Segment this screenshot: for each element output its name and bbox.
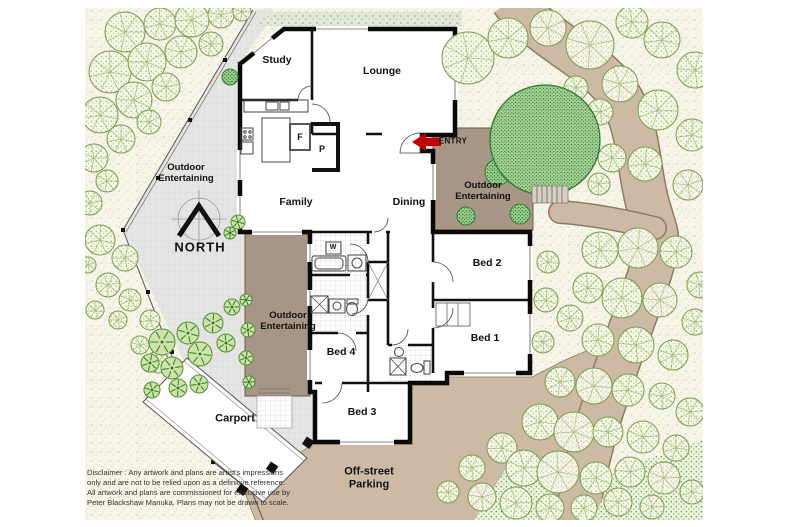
deck-steps — [532, 186, 568, 203]
site-plan-svg — [0, 0, 790, 527]
hedge-band — [252, 12, 462, 26]
site-plan: Study Lounge Family Dining Bed 2 Bed 1 B… — [0, 0, 790, 527]
large-feature-tree — [490, 85, 600, 195]
side-deck — [245, 234, 310, 396]
